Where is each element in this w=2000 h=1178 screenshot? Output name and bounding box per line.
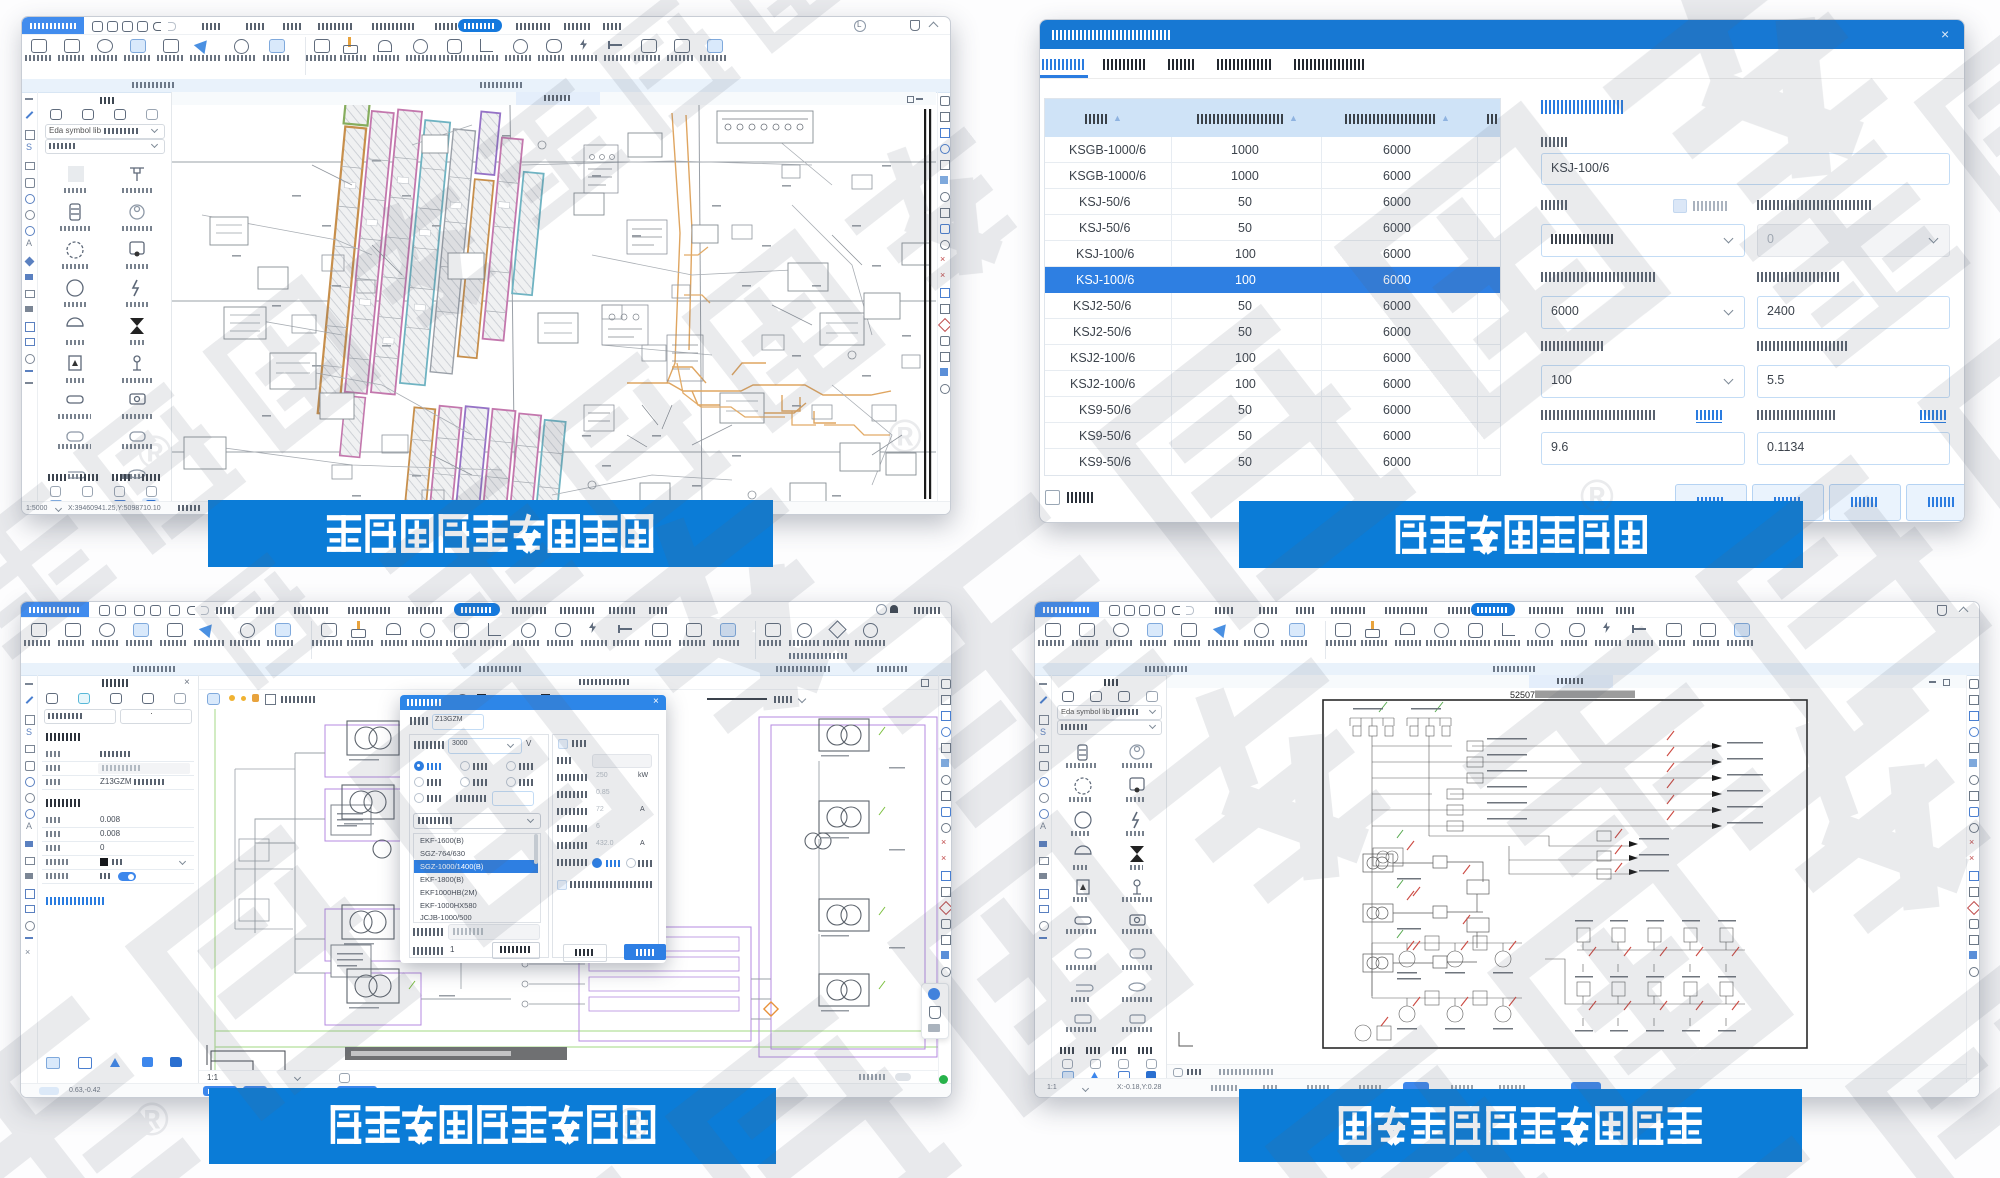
svg-text:®: ®	[135, 1093, 169, 1145]
svg-text:52507: 52507	[1510, 690, 1535, 700]
